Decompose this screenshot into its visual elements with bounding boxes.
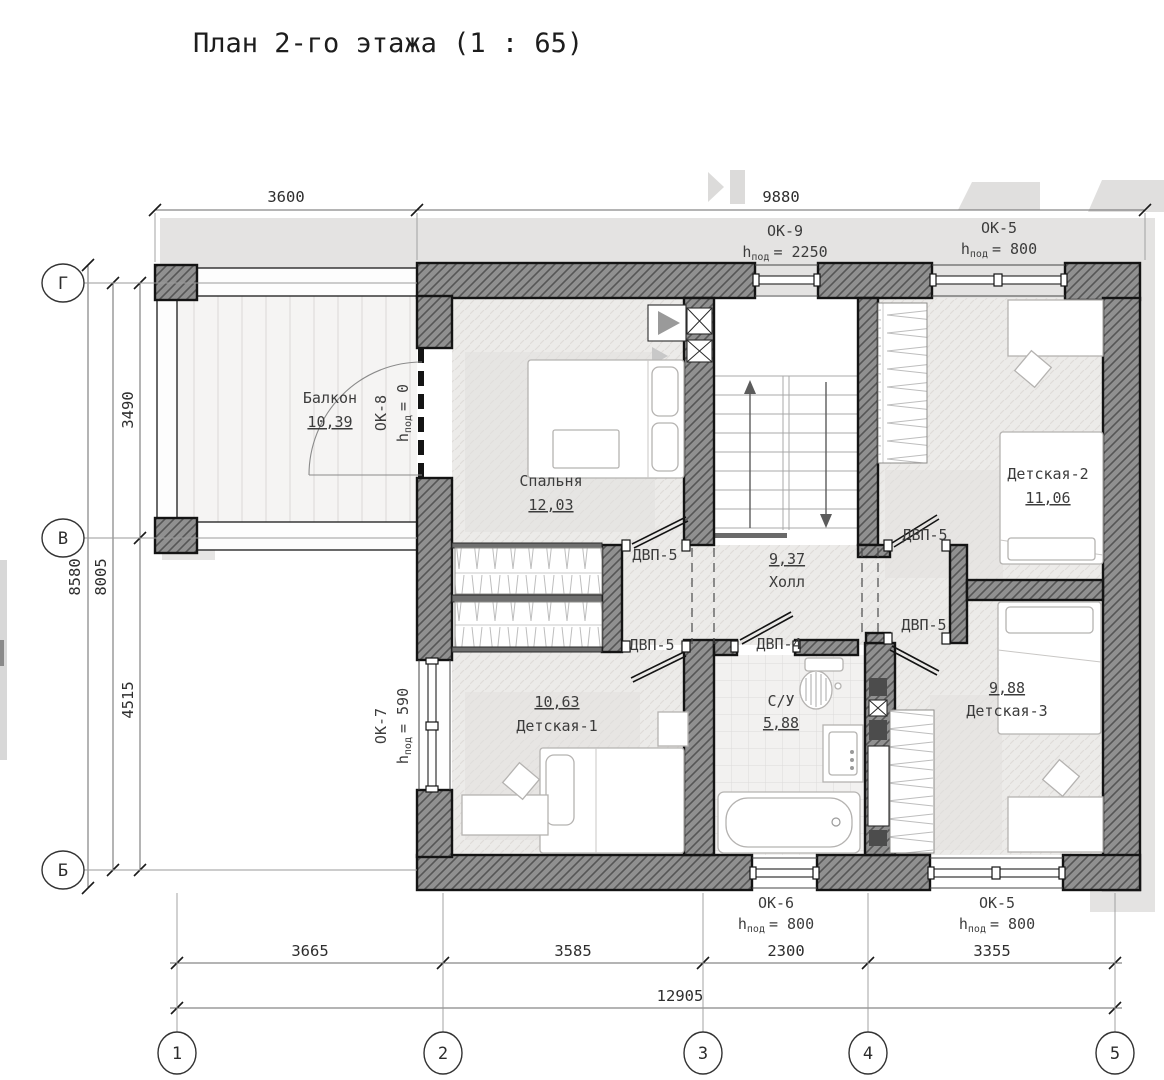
balcony-pillar-bottom (155, 518, 197, 553)
shaft-dark-3 (869, 830, 887, 846)
wall-left-upper (417, 296, 452, 348)
dim-bottom-3665: 3665 (291, 942, 328, 960)
room-area-hall: 9,37 (769, 550, 805, 568)
dim-left-4515: 4515 (119, 681, 137, 718)
stairwell-floor (714, 295, 858, 545)
kids1-side-table (658, 712, 688, 746)
room-name-bedroom: Спальня (519, 472, 582, 490)
axis-label-b: Б (58, 861, 68, 881)
room-name-balcony: Балкон (303, 389, 357, 407)
axis-bubble-col-1: 1 (158, 1032, 196, 1074)
balcony-pillar-top (155, 265, 197, 300)
balcony-parapet-left (157, 300, 177, 518)
wall-top-left (417, 263, 755, 298)
dim-bottom-12905: 12905 (657, 987, 704, 1005)
wardrobe-kids2 (878, 303, 927, 463)
axis-bubble-row-v: В (42, 519, 84, 557)
door-label-kids1: ДВП-5 (629, 636, 674, 654)
wall-nook-east (950, 545, 967, 643)
room-area-kids3: 9,88 (989, 679, 1025, 697)
dim-left-8580: 8580 (66, 558, 84, 595)
wall-bath-top-east (795, 640, 858, 655)
axis-label-5: 5 (1110, 1044, 1120, 1064)
dim-top-3600: 3600 (267, 188, 304, 206)
wall-bottom-right (1063, 855, 1140, 890)
window-ok7-drawn (419, 658, 450, 792)
balcony-parapet-top (197, 268, 417, 296)
wall-stair-left (684, 298, 714, 545)
dim-left-3490: 3490 (119, 391, 137, 428)
window-label-ok8: ОК-8 (372, 395, 390, 431)
wall-bottom-mid (817, 855, 930, 890)
wardrobe-kids3 (890, 710, 934, 853)
balcony-parapet-bottom (197, 522, 417, 550)
window-ok5-bottom-drawn (928, 858, 1065, 888)
shaft-dark-1 (869, 678, 887, 696)
room-area-bedroom: 12,03 (528, 496, 573, 514)
window-label-ok6: ОК-6 (758, 894, 794, 912)
axis-label-2: 2 (438, 1044, 448, 1064)
axis-bubble-col-3: 3 (684, 1032, 722, 1074)
axis-label-3: 3 (698, 1044, 708, 1064)
bedroom-bed (528, 360, 684, 478)
axis-bubble-row-b: Б (42, 851, 84, 889)
vent-x-box-1 (687, 308, 712, 334)
dim-bottom-3585: 3585 (554, 942, 591, 960)
pillow (652, 367, 678, 416)
bed-foot (1008, 538, 1095, 560)
axis-label-g: Г (58, 274, 68, 294)
wall-bottom-left (417, 855, 752, 890)
window-label-ok5-top: ОК-5 (981, 219, 1017, 237)
window-label-ok5-bottom: ОК-5 (979, 894, 1015, 912)
vent-x-box-3 (869, 700, 887, 716)
pillow (546, 755, 574, 825)
floor-plan-svg: 1 2 3 4 5 Г В Б План 2-го этажа (1 : 65)… (0, 0, 1164, 1080)
stair-landing-edge (713, 533, 787, 538)
axis-bubble-row-g: Г (42, 264, 84, 302)
dim-left-8005: 8005 (92, 558, 110, 595)
room-area-balcony: 10,39 (307, 413, 352, 431)
axis-label-v: В (58, 529, 68, 549)
axis-label-4: 4 (863, 1044, 873, 1064)
room-area-kids1: 10,63 (534, 693, 579, 711)
room-name-bath: С/У (767, 692, 794, 710)
wall-closet-east (602, 545, 622, 652)
pillow (1006, 607, 1093, 633)
window-label-ok7: ОК-7 (372, 708, 390, 744)
room-area-bath: 5,88 (763, 714, 799, 732)
closet-kids1 (455, 602, 602, 647)
room-name-hall: Холл (769, 573, 805, 591)
door-label-kids3: ДВП-5 (901, 616, 946, 634)
axis-bubble-col-4: 4 (849, 1032, 887, 1074)
drawing-title: План 2-го этажа (1 : 65) (193, 28, 583, 59)
roof-arrow-shape (708, 172, 724, 202)
wall-left-lower (417, 790, 452, 857)
wall-bath-left (684, 640, 714, 855)
closet-bedroom (455, 548, 602, 594)
room-name-kids3: Детская-3 (966, 702, 1047, 720)
wall-left-mid (417, 478, 452, 660)
axis-bubble-col-5: 5 (1096, 1032, 1134, 1074)
wall-right (1103, 298, 1140, 890)
bed-throw (553, 430, 619, 468)
wall-kids2-kids3 (967, 580, 1103, 600)
shaft-dark-2 (869, 720, 887, 740)
dim-bottom-3355: 3355 (973, 942, 1010, 960)
window-sill-ok5-bottom: hпод= 800 (959, 915, 1035, 935)
door-label-bath: ДВП-4 (756, 635, 801, 653)
shaft-slot (868, 746, 889, 826)
bath-sink (823, 725, 863, 782)
window-sill-ok6: hпод= 800 (738, 915, 814, 935)
dim-bottom-2300: 2300 (767, 942, 804, 960)
bathtub (718, 792, 860, 853)
kids1-bed (540, 748, 684, 853)
room-name-kids2: Детская-2 (1007, 465, 1088, 483)
window-ok6-drawn (750, 858, 819, 888)
door-label-bedroom: ДВП-5 (632, 546, 677, 564)
room-name-kids1: Детская-1 (516, 717, 597, 735)
window-sill-ok7: hпод= 590 (394, 688, 414, 764)
wall-stair-right (858, 298, 878, 545)
axis-label-1: 1 (172, 1044, 182, 1064)
room-area-kids2: 11,06 (1025, 489, 1070, 507)
window-label-ok9: ОК-9 (767, 222, 803, 240)
dim-top-9880: 9880 (762, 188, 799, 206)
vent-x-box-2 (687, 340, 712, 362)
floor-plan-page: 1 2 3 4 5 Г В Б План 2-го этажа (1 : 65)… (0, 0, 1164, 1080)
axis-bubble-col-2: 2 (424, 1032, 462, 1074)
wall-top-mid (818, 263, 932, 298)
pillow (652, 423, 678, 471)
door-label-kids2: ДВП-5 (902, 526, 947, 544)
wall-top-right-corner (1065, 263, 1140, 300)
